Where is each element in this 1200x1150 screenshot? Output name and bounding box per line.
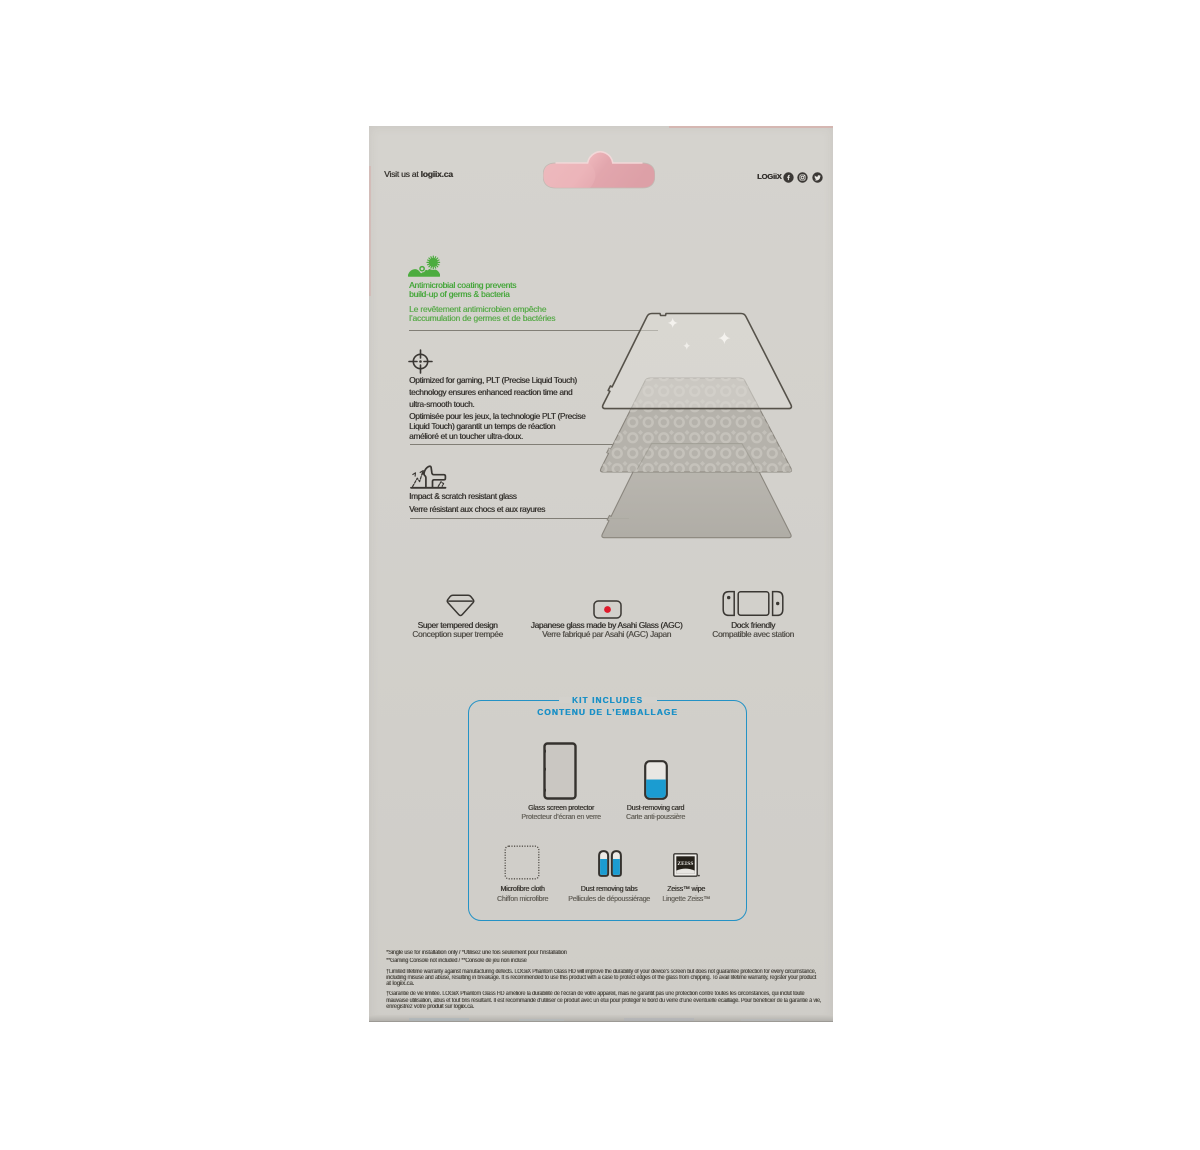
svg-text:ZEISS: ZEISS [677, 860, 693, 866]
